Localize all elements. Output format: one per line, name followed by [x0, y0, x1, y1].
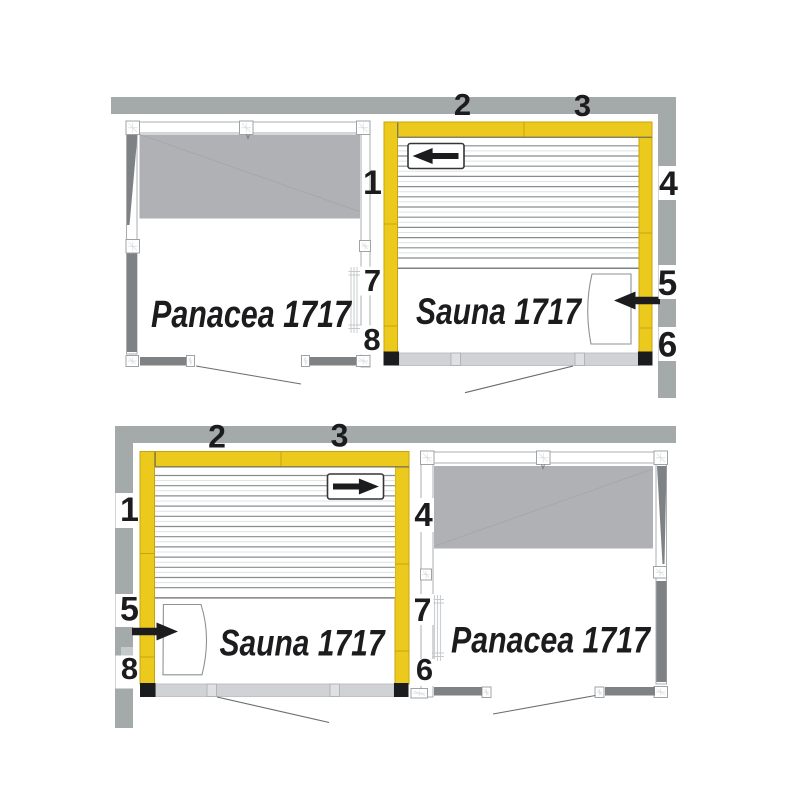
svg-text:5: 5 [658, 264, 677, 303]
svg-text:Sauna 1717: Sauna 1717 [416, 291, 583, 332]
svg-text:2: 2 [208, 419, 226, 455]
svg-text:8: 8 [363, 322, 380, 357]
svg-text:6: 6 [416, 652, 433, 687]
svg-text:Panacea 1717: Panacea 1717 [151, 294, 352, 336]
svg-text:2: 2 [454, 87, 471, 122]
svg-text:1: 1 [363, 164, 382, 202]
svg-text:Panacea 1717: Panacea 1717 [451, 620, 652, 661]
svg-text:Sauna 1717: Sauna 1717 [220, 623, 387, 664]
svg-text:5: 5 [120, 591, 139, 629]
svg-text:4: 4 [414, 496, 433, 533]
svg-text:3: 3 [574, 88, 591, 123]
svg-text:4: 4 [659, 165, 678, 203]
svg-text:7: 7 [414, 592, 432, 628]
svg-text:1: 1 [120, 491, 139, 529]
svg-text:7: 7 [364, 263, 381, 298]
svg-text:3: 3 [331, 418, 349, 454]
svg-text:8: 8 [121, 651, 138, 686]
svg-text:6: 6 [658, 326, 677, 365]
